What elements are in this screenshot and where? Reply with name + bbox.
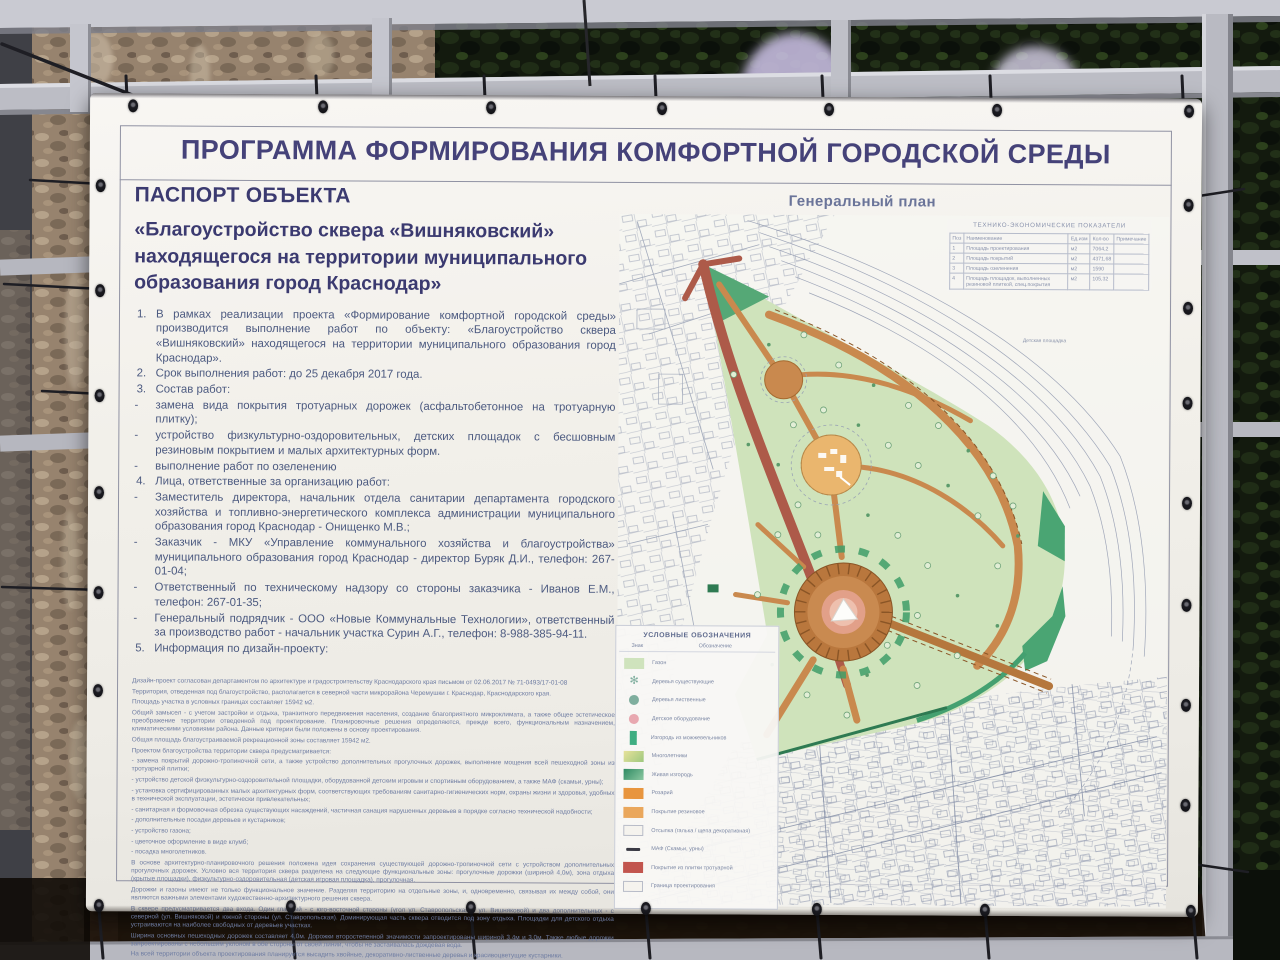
legend-row: Изгородь из можжевельников (619, 728, 775, 747)
list-text: Ответственный по техническому надзору со… (154, 582, 614, 609)
table-header-cell: Поз (950, 233, 964, 243)
legend-label: МАФ (Скамьи, урны) (651, 846, 774, 853)
legend-swatch (624, 769, 644, 780)
cell-qty: 4371,68 (1090, 254, 1114, 264)
legend-row: Отсыпка (галька / щепа декоративная) (618, 821, 774, 840)
legend-swatch (630, 731, 637, 745)
cell-note (1114, 244, 1149, 254)
fine-print-paragraph: Ширина основных пешеходных дорожек соста… (131, 932, 614, 951)
legend-col-desc: Обозначение (655, 643, 775, 650)
table-header-cell: Ед.изм (1068, 234, 1090, 244)
map-legend: УСЛОВНЫЕ ОБОЗНАЧЕНИЯ Знак Обозначение Га… (614, 625, 779, 910)
fine-print-paragraph: Дорожки и газоны имеют не только функцио… (131, 886, 614, 905)
legend-row: Граница проектирования (618, 877, 774, 896)
grommet (992, 104, 1002, 117)
legend-swatch (629, 695, 639, 705)
photo-of-information-banner: { "banner": { "title": "ПРОГРАММА ФОРМИР… (0, 0, 1280, 960)
grommet (95, 389, 105, 402)
legend-label: Деревья лиственные (652, 698, 775, 705)
cell-note (1114, 274, 1149, 290)
grommet (95, 284, 105, 297)
grommet (486, 101, 496, 114)
grommet (824, 103, 834, 116)
fine-print-paragraph: - цветочное оформление в виде клумб; (131, 838, 614, 849)
list-item: 1.В рамках реализации проекта «Формирова… (134, 307, 616, 368)
cell-name: Площадь проектирования (964, 243, 1069, 254)
legend-row: Живая изгородь (619, 765, 775, 784)
fine-print-paragraph: В сквере предусматривается два входа. Од… (131, 905, 614, 932)
list-text: Информация по дизайн-проекту: (154, 642, 328, 655)
legend-row: Газон (619, 654, 775, 673)
table-body: 1 Площадь проектирования м2 7064,2 2 Пло… (950, 243, 1149, 290)
cell-unit: м2 (1068, 274, 1090, 290)
maf-marker (708, 584, 719, 592)
grommet (1183, 302, 1193, 315)
map-annotation: Детская площадка (1023, 338, 1066, 344)
legend-swatch (624, 751, 644, 762)
roundabout-plaza (780, 549, 907, 676)
grommet (1181, 699, 1191, 712)
left-wall-sliver (0, 230, 30, 830)
legend-swatch (623, 881, 643, 892)
list-marker: - (134, 398, 150, 413)
list-item: 4.Лица, ответственные за организацию раб… (133, 475, 615, 492)
cell-pos: 1 (950, 243, 964, 253)
fine-print-paragraph: - посадка многолетников. (131, 849, 614, 860)
list-item: -Заместитель директора, начальник отдела… (133, 490, 615, 537)
list-item: -Генеральный подрядчик - ООО «Новые Комм… (132, 611, 614, 643)
grommet (128, 99, 138, 112)
legend-label: Живая изгородь (652, 772, 775, 779)
list-marker: 5. (135, 641, 151, 656)
fine-print-paragraph: - устройство детской физкультурно-оздоро… (132, 776, 615, 787)
list-marker: - (134, 535, 150, 550)
list-marker: - (134, 580, 150, 595)
fine-print-paragraph: - установка сертифицированных малых архи… (131, 787, 614, 806)
fine-print-lead: Дизайн-проект согласован департаментом п… (132, 677, 615, 688)
cell-note (1114, 254, 1149, 264)
grommet (812, 903, 822, 916)
object-name-quote: «Благоустройство сквера «Вишняковский»на… (134, 216, 616, 298)
legend-title: УСЛОВНЫЕ ОБОЗНАЧЕНИЯ (619, 632, 775, 640)
grommet (1184, 105, 1194, 118)
table-title: ТЕХНИКО-ЭКОНОМИЧЕСКИЕ ПОКАЗАТЕЛИ (949, 222, 1149, 230)
fine-print-paragraph: - санитарная и формовочная обрезка сущес… (131, 806, 614, 817)
table-header-cell: Примечание (1114, 234, 1149, 244)
passport-heading: ПАСПОРТ ОБЪЕКТА (135, 183, 617, 210)
fine-print-paragraph: - дополнительные посадки деревьев и куст… (131, 817, 614, 828)
object-name-line: находящегося на территории муниципальног… (134, 243, 616, 272)
general-plan-heading: Генеральный план (789, 193, 936, 211)
grommet (318, 100, 328, 113)
list-item: 2.Срок выполнения работ: до 25 декабря 2… (134, 367, 616, 384)
list-text: Генеральный подрядчик - ООО «Новые Комму… (154, 612, 614, 641)
grommet (94, 486, 104, 499)
design-project-fine-print: Дизайн-проект согласован департаментом п… (130, 677, 615, 960)
list-item: -устройство физкультурно-оздоровительных… (133, 428, 615, 460)
grommet (94, 899, 104, 912)
cell-name: Площадь покрытий (964, 253, 1069, 264)
grommet (1186, 905, 1196, 918)
legend-swatch: ✻ (624, 676, 644, 687)
list-marker: 3. (137, 382, 153, 397)
grommet (466, 901, 476, 914)
legend-row: Розарий (618, 784, 774, 803)
legend-label: Розарий (651, 790, 774, 797)
list-marker: 4. (136, 475, 152, 490)
cell-name: Площадь озеленения (964, 263, 1069, 274)
legend-label: Покрытие из плитки тротуарной (651, 865, 774, 872)
legend-label: Покрытие резиновое (651, 809, 774, 816)
fine-print-paragraph: На всей территории объекта проектировани… (131, 951, 614, 960)
legend-row: Покрытие резиновое (618, 803, 774, 822)
legend-label: Деревья существующие (652, 679, 775, 686)
list-text: Срок выполнения работ: до 25 декабря 201… (156, 368, 423, 381)
legend-swatch (624, 658, 644, 669)
object-name-line: образования город Краснодар» (134, 269, 616, 298)
fine-print-paragraph: В основе архитектурно-планировочного реш… (131, 859, 614, 886)
legend-label: Изгородь из можжевельников (651, 735, 775, 742)
table-row: 4 Площадь площадок, выполненных резиново… (950, 273, 1149, 290)
legend-swatch (623, 825, 643, 836)
technical-indicators-table: ТЕХНИКО-ЭКОНОМИЧЕСКИЕ ПОКАЗАТЕЛИ ПозНаим… (947, 219, 1151, 293)
fine-print-paragraph: - замена покрытий дорожно-тропиночной се… (132, 758, 615, 777)
list-marker: 2. (137, 367, 153, 382)
information-banner: ПРОГРАММА ФОРМИРОВАНИЯ КОМФОРТНОЙ ГОРОДС… (86, 93, 1202, 917)
legend-label: Газон (652, 660, 775, 667)
table-header-cell: Кол-во (1090, 234, 1114, 244)
legend-label: Детское оборудование (652, 716, 775, 723)
grommet (1180, 799, 1190, 812)
list-text: устройство физкультурно-оздоровительных,… (155, 430, 615, 458)
banner-title: ПРОГРАММА ФОРМИРОВАНИЯ КОМФОРТНОЙ ГОРОДС… (135, 134, 1157, 170)
fine-print-paragraph: Общая площадь благоустраиваемой рекреаци… (132, 736, 615, 747)
grommet (1184, 199, 1194, 212)
fine-print-paragraph: Проектом благоустройства территории скве… (132, 747, 615, 758)
list-marker: - (133, 611, 149, 626)
cell-pos: 2 (950, 253, 964, 263)
list-text: выполнение работ по озеленению (155, 460, 336, 473)
list-text: В рамках реализации проекта «Формировани… (156, 308, 616, 364)
legend-row: МАФ (Скамьи, урны) (618, 840, 774, 859)
fine-print-paragraph: Общий замысел - с учетом застройки и отд… (132, 709, 615, 736)
fine-print-paragraphs: Территория, отведенная под благоустройст… (130, 688, 615, 960)
list-marker: - (134, 459, 150, 474)
list-item: -Ответственный по техническому надзору с… (132, 580, 614, 612)
legend-rows: Газон ✻ Деревья существующие Деревья лис… (618, 654, 775, 897)
grommet (1181, 599, 1191, 612)
cell-unit: м2 (1068, 244, 1090, 254)
list-text: замена вида покрытия тротуарных дорожек … (155, 399, 615, 426)
list-marker: - (134, 490, 150, 505)
passport-list: 1.В рамках реализации проекта «Формирова… (132, 307, 616, 659)
list-text: Состав работ: (156, 383, 231, 395)
cell-qty: 105,32 (1090, 274, 1114, 290)
list-item: 3.Состав работ: (134, 382, 616, 399)
cell-pos: 3 (950, 263, 964, 273)
cell-qty: 7064,2 (1090, 244, 1114, 254)
fine-print-paragraph: Территория, отведенная под благоустройст… (132, 688, 615, 699)
grommet (93, 586, 103, 599)
grommet (641, 902, 651, 915)
legend-label: Граница проектирования (651, 883, 774, 890)
list-text: Заказчик - МКУ «Управление коммунального… (155, 536, 615, 578)
list-text: Заместитель директора, начальник отдела … (155, 491, 615, 534)
list-marker: 1. (137, 307, 153, 322)
legend-row: Многолетники (619, 747, 775, 766)
legend-row: Детское оборудование (619, 710, 775, 729)
list-marker: - (134, 428, 150, 443)
cell-pos: 4 (950, 273, 964, 289)
list-item: 5.Информация по дизайн-проекту: (132, 641, 614, 658)
list-item: -замена вида покрытия тротуарных дорожек… (133, 398, 615, 430)
grommet (1182, 497, 1192, 510)
legend-header: Знак Обозначение (619, 643, 775, 653)
legend-swatch (623, 844, 643, 855)
cell-qty: 1590 (1090, 264, 1114, 274)
legend-swatch (623, 862, 643, 873)
grommet (93, 684, 103, 697)
list-item: -Заказчик - МКУ «Управление коммунальног… (133, 535, 615, 582)
legend-col-sign: Знак (619, 643, 655, 649)
legend-row: Деревья лиственные (619, 691, 775, 710)
table-header-cell: Наименование (964, 233, 1069, 244)
legend-row: ✻ Деревья существующие (619, 672, 775, 691)
legend-swatch (623, 806, 643, 817)
grommet (657, 102, 667, 115)
cell-unit: м2 (1068, 254, 1090, 264)
grommet (286, 900, 296, 913)
passport-column: ПАСПОРТ ОБЪЕКТА «Благоустройство сквера … (132, 183, 616, 659)
cell-unit: м2 (1068, 264, 1090, 274)
legend-swatch (629, 714, 639, 724)
fine-print-paragraph: - устройство газона; (131, 827, 614, 838)
cell-note (1114, 264, 1149, 274)
grommet (980, 904, 990, 917)
legend-label: Многолетники (652, 753, 775, 760)
fine-print-paragraph: Площадь участка в условных границах сост… (132, 699, 615, 710)
legend-swatch (623, 788, 643, 799)
cell-name: Площадь площадок, выполненных резиновой … (964, 273, 1069, 290)
object-name-line: «Благоустройство сквера «Вишняковский» (134, 216, 616, 245)
list-text: Лица, ответственные за организацию работ… (155, 476, 390, 489)
grommet (96, 179, 106, 192)
grommet (1183, 397, 1193, 410)
list-item: -выполнение работ по озеленению (133, 459, 615, 476)
legend-label: Отсыпка (галька / щепа декоративная) (651, 828, 774, 835)
legend-row: Покрытие из плитки тротуарной (618, 858, 774, 877)
